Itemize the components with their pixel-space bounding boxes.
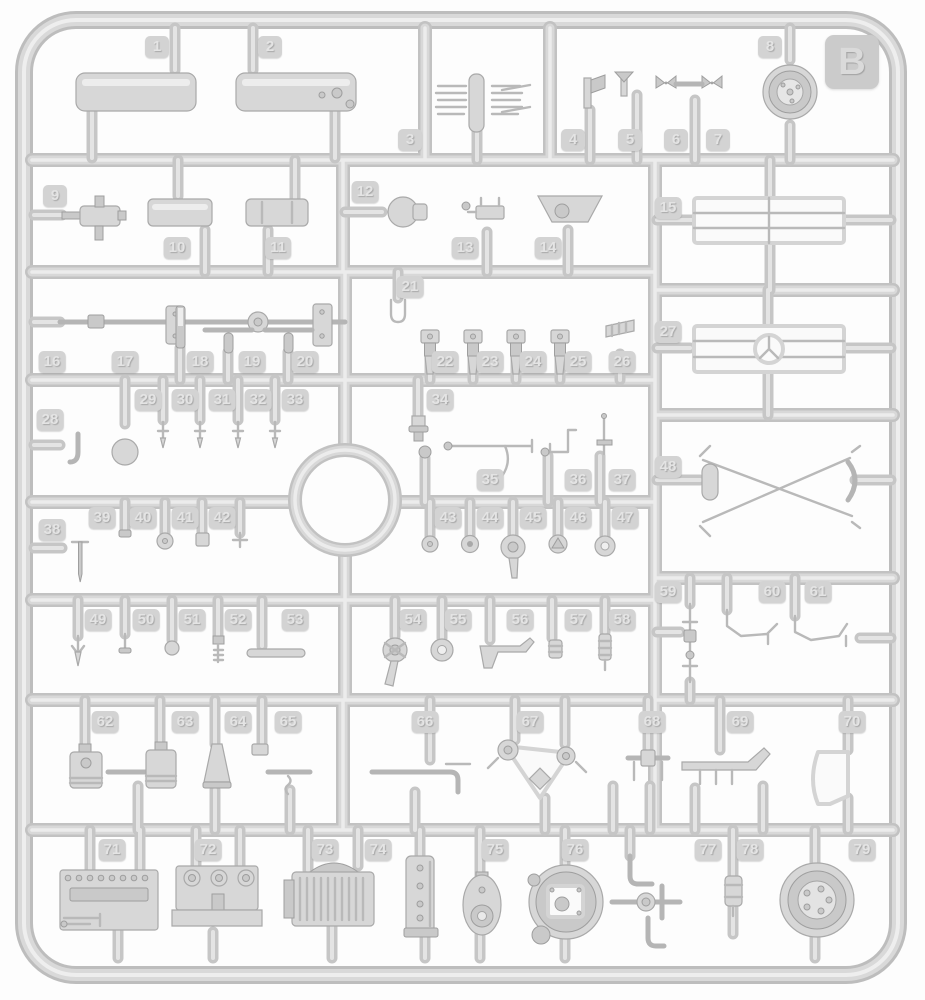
part-tag-39: 39 — [89, 507, 116, 529]
part-58-shape — [599, 634, 611, 670]
part-7-shape — [676, 76, 722, 88]
part-14-shape — [538, 196, 602, 222]
part-15-shape — [694, 198, 844, 243]
part-tag-25: 25 — [565, 351, 592, 373]
part-33-shape — [270, 422, 280, 448]
part-51-shape — [165, 641, 179, 655]
part-tag-76: 76 — [562, 839, 589, 861]
part-tag-9: 9 — [43, 185, 67, 207]
part-69-shape — [682, 748, 770, 784]
part-tag-19: 19 — [239, 351, 266, 373]
part-tag-50: 50 — [133, 609, 160, 631]
part-tag-2: 2 — [258, 36, 282, 58]
part-63-shape — [108, 742, 176, 788]
part-tag-16: 16 — [39, 351, 66, 373]
part-tag-67: 67 — [517, 711, 544, 733]
part-tag-56: 56 — [507, 609, 534, 631]
part-tag-52: 52 — [225, 609, 252, 631]
part-41-shape — [196, 533, 209, 546]
part-tag-41: 41 — [172, 507, 199, 529]
part-28-shape — [70, 434, 78, 462]
part-tag-47: 47 — [612, 507, 639, 529]
part-tag-72: 72 — [195, 839, 222, 861]
part-tag-62: 62 — [92, 711, 119, 733]
part-tag-10: 10 — [164, 237, 191, 259]
part-tag-77: 77 — [695, 839, 722, 861]
part-30-shape — [158, 422, 168, 448]
part-tag-3: 3 — [398, 129, 422, 151]
part-tag-31: 31 — [209, 389, 236, 411]
part-12-shape — [388, 197, 427, 227]
part-tag-7: 7 — [706, 129, 730, 151]
part-tag-6: 6 — [664, 129, 688, 151]
part-48-shape — [700, 446, 860, 536]
part-55-shape — [431, 639, 453, 661]
part-tag-8: 8 — [758, 36, 782, 58]
part-60-shape — [727, 610, 777, 644]
part-tag-58: 58 — [609, 609, 636, 631]
part-tag-54: 54 — [400, 609, 427, 631]
sprue-stems — [34, 28, 891, 958]
sprue-photo: 1234567891011121314151617181920212223242… — [0, 0, 925, 1000]
part-tag-11: 11 — [265, 237, 291, 259]
part-37-shape — [597, 414, 612, 455]
part-11-shape — [246, 199, 308, 226]
part-34-shape — [409, 416, 428, 441]
part-tag-60: 60 — [759, 581, 786, 603]
part-tag-12: 12 — [352, 181, 379, 203]
part-tag-40: 40 — [130, 507, 157, 529]
part-tag-71: 71 — [99, 839, 126, 861]
part-20-shape — [265, 330, 312, 353]
part-36-shape — [541, 430, 576, 456]
part-tag-32: 32 — [245, 389, 272, 411]
part-5-shape — [615, 72, 633, 96]
part-tag-37: 37 — [609, 469, 636, 491]
part-tag-73: 73 — [312, 839, 339, 861]
part-13-shape — [462, 198, 504, 219]
part-75-shape — [463, 872, 501, 935]
part-47-shape — [595, 536, 615, 556]
part-tag-59: 59 — [655, 581, 682, 603]
part-tag-69: 69 — [727, 711, 754, 733]
part-16-17-shape — [60, 304, 345, 346]
part-66-shape — [372, 764, 470, 792]
sprue-graphic — [0, 0, 925, 1000]
part-27-shape — [694, 326, 844, 372]
part-70-shape — [813, 752, 848, 804]
part-54-shape — [383, 638, 407, 686]
part-tag-14: 14 — [535, 237, 562, 259]
part-31-shape — [195, 422, 205, 448]
part-tag-74: 74 — [365, 839, 392, 861]
part-43-shape — [422, 536, 438, 552]
part-tag-33: 33 — [282, 389, 309, 411]
part-tag-4: 4 — [561, 129, 585, 151]
part-tag-57: 57 — [565, 609, 592, 631]
part-49-shape — [72, 636, 84, 666]
part-tag-51: 51 — [179, 609, 206, 631]
part-tag-35: 35 — [477, 469, 504, 491]
part-tag-5: 5 — [618, 129, 642, 151]
part-tag-23: 23 — [477, 351, 504, 373]
part-tag-45: 45 — [520, 507, 547, 529]
part-tag-1: 1 — [145, 36, 169, 58]
part-38-shape — [72, 542, 88, 582]
part-tag-27: 27 — [655, 321, 682, 343]
part-52-shape — [213, 636, 224, 662]
part-2-shape — [236, 73, 356, 111]
part-tag-29: 29 — [135, 389, 162, 411]
part-61-shape — [795, 616, 847, 646]
part-tag-24: 24 — [520, 351, 547, 373]
part-29-shape — [112, 439, 138, 465]
part-tag-44: 44 — [477, 507, 504, 529]
part-tag-53: 53 — [282, 609, 309, 631]
part-19-shape — [205, 330, 252, 353]
part-62-shape — [70, 744, 102, 788]
part-tag-49: 49 — [85, 609, 112, 631]
part-74-shape — [404, 856, 438, 937]
center-ring — [295, 450, 395, 550]
sprue-letter-tag: B — [825, 35, 879, 89]
part-65-shape — [252, 744, 310, 794]
part-10-shape — [148, 199, 212, 226]
part-tag-68: 68 — [639, 711, 666, 733]
part-tag-70: 70 — [839, 711, 866, 733]
part-tag-36: 36 — [565, 469, 592, 491]
part-1-shape — [76, 73, 196, 111]
part-tag-20: 20 — [292, 351, 319, 373]
part-77-shape — [612, 856, 680, 946]
part-tag-55: 55 — [445, 609, 472, 631]
part-tag-64: 64 — [225, 711, 252, 733]
part-tag-61: 61 — [805, 581, 832, 603]
part-59-shape — [683, 604, 697, 682]
part-tag-13: 13 — [452, 237, 479, 259]
part-tag-21: 21 — [397, 276, 424, 298]
part-tag-42: 42 — [209, 507, 236, 529]
part-8-shape — [763, 65, 817, 119]
part-tag-75: 75 — [482, 839, 509, 861]
part-9-shape — [62, 196, 126, 240]
part-tag-46: 46 — [565, 507, 592, 529]
part-44-shape — [462, 536, 479, 553]
part-tag-34: 34 — [427, 389, 454, 411]
part-tag-18: 18 — [187, 351, 214, 373]
part-tag-65: 65 — [275, 711, 302, 733]
part-tag-66: 66 — [412, 711, 439, 733]
part-tag-17: 17 — [112, 351, 139, 373]
part-tag-48: 48 — [655, 456, 682, 478]
part-45-shape — [501, 535, 525, 578]
part-tag-38: 38 — [39, 519, 66, 541]
part-tag-63: 63 — [172, 711, 199, 733]
part-18-shape — [176, 306, 185, 348]
part-53-shape — [247, 649, 305, 657]
part-57-shape — [549, 640, 562, 658]
part-tag-78: 78 — [737, 839, 764, 861]
part-71-shape — [60, 870, 158, 930]
part-64-shape — [203, 744, 231, 788]
part-tag-43: 43 — [435, 507, 462, 529]
part-tag-30: 30 — [172, 389, 199, 411]
part-3-shape — [436, 74, 530, 132]
part-tag-26: 26 — [609, 351, 636, 373]
part-26-shape — [606, 320, 634, 337]
part-76-shape — [528, 865, 603, 944]
part-79-shape — [780, 863, 854, 937]
part-tag-15: 15 — [655, 197, 682, 219]
part-4-shape — [584, 75, 605, 108]
part-35-shape — [419, 440, 532, 476]
part-6-shape — [656, 76, 676, 88]
part-tag-79: 79 — [849, 839, 876, 861]
part-46-shape — [549, 535, 567, 553]
part-tag-22: 22 — [432, 351, 459, 373]
part-tag-28: 28 — [37, 409, 64, 431]
part-67-shape — [488, 740, 586, 798]
part-32-shape — [233, 422, 243, 448]
part-72-shape — [172, 866, 262, 926]
part-73-shape — [284, 863, 374, 926]
part-40-shape — [157, 533, 173, 549]
part-39-shape — [119, 530, 131, 537]
